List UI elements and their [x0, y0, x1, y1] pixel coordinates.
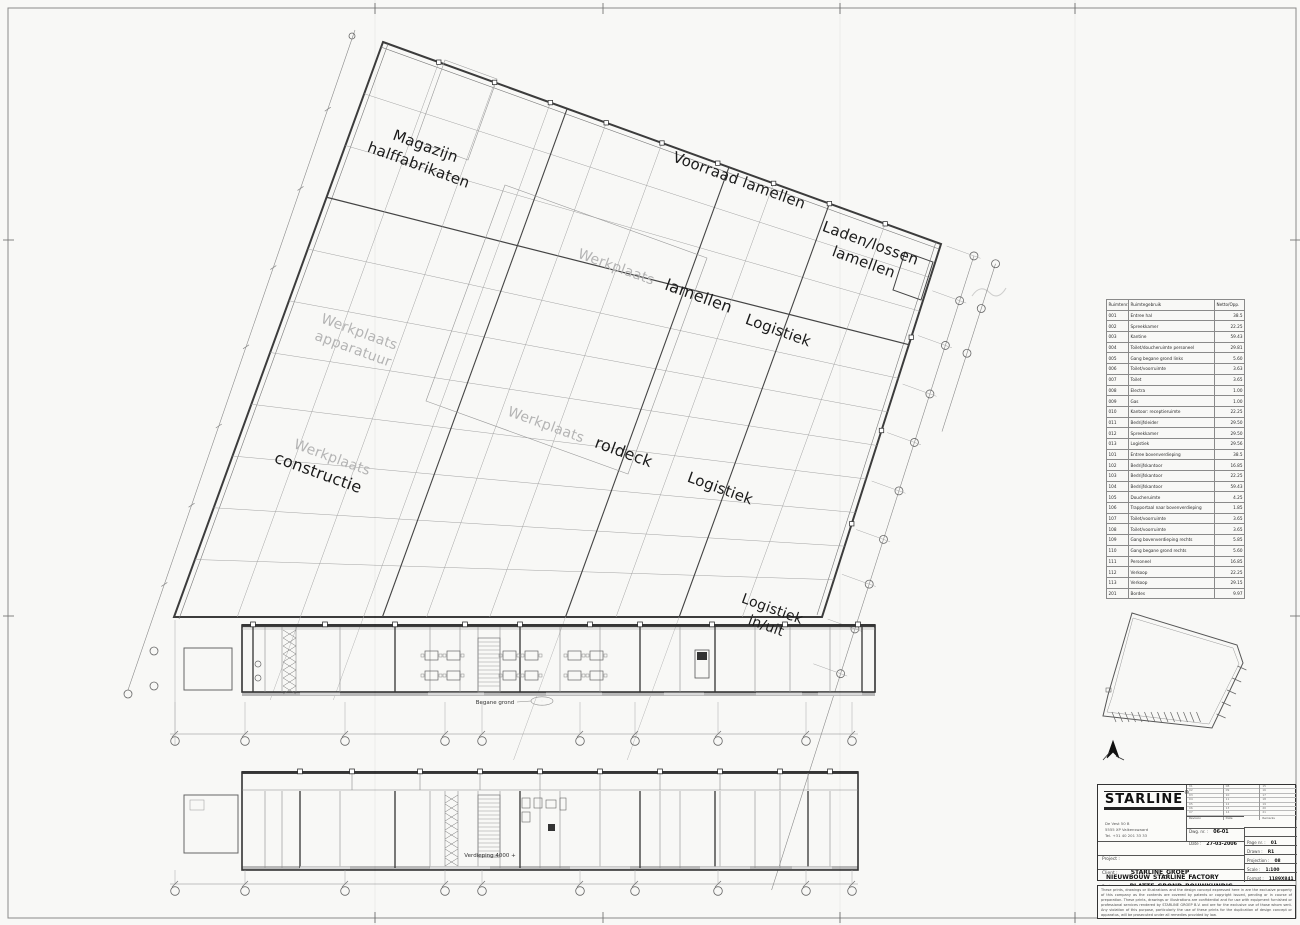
- table-row: 012Spreekkamer29.50: [1107, 428, 1245, 439]
- table-cell: Bedrijfskantoor: [1129, 460, 1215, 471]
- table-cell: 201: [1107, 588, 1129, 599]
- table-cell: 007: [1107, 374, 1129, 385]
- table-cell: 59.43: [1215, 332, 1245, 343]
- table-row: 009Gas1.00: [1107, 396, 1245, 407]
- table-row: 107Toilet/voorruimte3.65: [1107, 513, 1245, 524]
- table-cell: 005: [1107, 353, 1129, 364]
- first-floor-plan: [184, 769, 858, 870]
- table-row: 109Gang bovenverdieping rechts5.85: [1107, 535, 1245, 546]
- table-row: 004Toilet/doucheruimte personeel29.81: [1107, 342, 1245, 353]
- floor-label-verdieping: Verdieping 4000 +: [464, 853, 515, 859]
- table-row: 002Spreekkamer22.25: [1107, 321, 1245, 332]
- scan-artifact: [972, 288, 1006, 296]
- starline-logo: STARLINE®: [1102, 788, 1186, 814]
- drawn-field: Drawn : R1: [1244, 836, 1297, 845]
- table-cell: 5.60: [1215, 353, 1245, 364]
- table-cell: Verkoop: [1129, 567, 1215, 578]
- table-cell: Kantoor: receptieruimte: [1129, 406, 1215, 417]
- table-row: 110Gang begane grond rechts5.60: [1107, 545, 1245, 556]
- table-cell: Personeel: [1129, 556, 1215, 567]
- table-cell: Logistiek: [1129, 438, 1215, 449]
- table-cell: Kantine: [1129, 332, 1215, 343]
- table-cell: 29.50: [1215, 428, 1245, 439]
- table-cell: 010: [1107, 406, 1129, 417]
- table-row: 101Entree bovenverdieping38.5: [1107, 449, 1245, 460]
- table-cell: 006: [1107, 364, 1129, 375]
- table-cell: 011: [1107, 417, 1129, 428]
- table-row: 010Kantoor: receptieruimte22.25: [1107, 406, 1245, 417]
- table-cell: 22.25: [1215, 406, 1245, 417]
- table-cell: 29.50: [1215, 417, 1245, 428]
- table-cell: 004: [1107, 342, 1129, 353]
- table-cell: 107: [1107, 513, 1129, 524]
- table-cell: 5.60: [1215, 545, 1245, 556]
- table-cell: Gang begane grond rechts: [1129, 545, 1215, 556]
- table-row: 001Entree hal38.5: [1107, 310, 1245, 321]
- table-cell: 008: [1107, 385, 1129, 396]
- table-cell: 012: [1107, 428, 1129, 439]
- drawing-sheet: Magazijn halffabrikaten Voorraad lamelle…: [0, 0, 1300, 925]
- table-cell: Bedrijfskantoor: [1129, 481, 1215, 492]
- date-field: Date : 27-03-2006: [1186, 828, 1244, 841]
- projection-field: Projection : 08: [1244, 845, 1297, 854]
- table-cell: 106: [1107, 503, 1129, 514]
- fold-mark: [1074, 0, 1076, 925]
- revision-column: 01020304050607Revision: [1187, 785, 1224, 820]
- project-field: Project : NIEUWBOUW_STARLINE_FACTORY: [1098, 841, 1244, 855]
- factory-hall-plan: [174, 42, 941, 760]
- table-cell: 22.25: [1215, 567, 1245, 578]
- table-cell: 102: [1107, 460, 1129, 471]
- table-cell: 38.5: [1215, 449, 1245, 460]
- table-cell: 3.65: [1215, 513, 1245, 524]
- table-cell: 3.65: [1215, 374, 1245, 385]
- table-row: 006Toilet/voorruimte3.63: [1107, 364, 1245, 375]
- dwg-number-field: Dwg. nr. : 06-01: [1186, 816, 1244, 828]
- table-cell: Bedrijfsleider: [1129, 417, 1215, 428]
- table-cell: Spreekkamer: [1129, 321, 1215, 332]
- table-cell: 002: [1107, 321, 1129, 332]
- table-cell: Toilet/doucheruimte personeel: [1129, 342, 1215, 353]
- table-cell: 22.25: [1215, 471, 1245, 482]
- fold-mark: [839, 0, 841, 925]
- table-cell: Toilet: [1129, 374, 1215, 385]
- company-address: De Vest 50 B5555 XP ValkenswaardTel. +31…: [1105, 821, 1189, 839]
- table-cell: 105: [1107, 492, 1129, 503]
- table-cell: 1.85: [1215, 503, 1245, 514]
- table-cell: Gas: [1129, 396, 1215, 407]
- column-header: Netto/Opp.: [1215, 300, 1245, 311]
- table-cell: Doucheruimte: [1129, 492, 1215, 503]
- table-cell: Toilet/voorruimte: [1129, 524, 1215, 535]
- table-cell: 38.5: [1215, 310, 1245, 321]
- table-cell: Gang bovenverdieping rechts: [1129, 535, 1215, 546]
- table-cell: 16.85: [1215, 556, 1245, 567]
- table-cell: 9.97: [1215, 588, 1245, 599]
- table-cell: 29.81: [1215, 342, 1245, 353]
- table-cell: 108: [1107, 524, 1129, 535]
- revision-column: 08091011121314Date: [1224, 785, 1261, 820]
- table-cell: 29.56: [1215, 438, 1245, 449]
- table-row: 108Toilet/voorruimte3.65: [1107, 524, 1245, 535]
- table-cell: 113: [1107, 577, 1129, 588]
- table-cell: 009: [1107, 396, 1129, 407]
- part-field: Part : PLATTE_GROND_BOUWKUNDIG: [1098, 869, 1244, 882]
- client-field: Client : STARLINE_GROEP: [1098, 855, 1244, 869]
- table-cell: 29.15: [1215, 577, 1245, 588]
- starline-logo-text: STARLINE®: [1104, 791, 1184, 810]
- revision-column: 15161718192021Remarks: [1260, 785, 1297, 820]
- table-cell: Gang begane grond links: [1129, 353, 1215, 364]
- table-cell: 101: [1107, 449, 1129, 460]
- table-cell: 111: [1107, 556, 1129, 567]
- table-cell: Bedrijfskantoor: [1129, 471, 1215, 482]
- table-row: 201Bordes9.97: [1107, 588, 1245, 599]
- floor-label-begane-grond: Begane grond: [476, 700, 515, 706]
- table-cell: 013: [1107, 438, 1129, 449]
- table-cell: Spreekkamer: [1129, 428, 1215, 439]
- table-row: 111Personeel16.85: [1107, 556, 1245, 567]
- scale-field: Scale : 1:100: [1244, 854, 1297, 863]
- table-cell: 103: [1107, 471, 1129, 482]
- table-cell: Toilet/voorruimte: [1129, 364, 1215, 375]
- table-row: 105Doucheruimte4.25: [1107, 492, 1245, 503]
- north-arrow-icon: [1103, 741, 1124, 760]
- table-cell: 16.85: [1215, 460, 1245, 471]
- table-cell: 4.25: [1215, 492, 1245, 503]
- table-cell: 22.25: [1215, 321, 1245, 332]
- table-cell: 109: [1107, 535, 1129, 546]
- table-row: 104Bedrijfskantoor59.43: [1107, 481, 1245, 492]
- table-row: 106Trapportaal naar bovenverdieping1.85: [1107, 503, 1245, 514]
- column-header: Ruimtegebruik: [1129, 300, 1215, 311]
- table-cell: Verkoop: [1129, 577, 1215, 588]
- table-cell: 104: [1107, 481, 1129, 492]
- table-cell: 3.65: [1215, 524, 1245, 535]
- table-cell: Entree hal: [1129, 310, 1215, 321]
- table-cell: 3.63: [1215, 364, 1245, 375]
- table-cell: 5.85: [1215, 535, 1245, 546]
- table-row: 102Bedrijfskantoor16.85: [1107, 460, 1245, 471]
- table-cell: 59.43: [1215, 481, 1245, 492]
- table-row: 003Kantine59.43: [1107, 332, 1245, 343]
- table-row: 113Verkoop29.15: [1107, 577, 1245, 588]
- column-header: Ruimtenr.: [1107, 300, 1129, 311]
- room-schedule-table: Ruimtenr.RuimtegebruikNetto/Opp.001Entre…: [1106, 299, 1244, 599]
- title-block: STARLINE® De Vest 50 B5555 XP Valkenswaa…: [1097, 784, 1296, 881]
- table-cell: Electra: [1129, 385, 1215, 396]
- table-row: 008Electra1.00: [1107, 385, 1245, 396]
- table-cell: 112: [1107, 567, 1129, 578]
- table-cell: Entree bovenverdieping: [1129, 449, 1215, 460]
- site-location-sketch: [1103, 613, 1246, 728]
- table-cell: 001: [1107, 310, 1129, 321]
- table-row: 007Toilet3.65: [1107, 374, 1245, 385]
- table-row: 013Logistiek29.56: [1107, 438, 1245, 449]
- revision-grid: 01020304050607Revision08091011121314Date…: [1186, 785, 1297, 816]
- table-cell: Toilet/voorruimte: [1129, 513, 1215, 524]
- table-cell: Trapportaal naar bovenverdieping: [1129, 503, 1215, 514]
- copyright-disclaimer: These prints, drawings or illustrations …: [1097, 885, 1296, 919]
- table-header-row: Ruimtenr.RuimtegebruikNetto/Opp.: [1107, 300, 1245, 311]
- table-row: 103Bedrijfskantoor22.25: [1107, 471, 1245, 482]
- table-row: 011Bedrijfsleider29.50: [1107, 417, 1245, 428]
- table-row: 005Gang begane grond links5.60: [1107, 353, 1245, 364]
- address-line: Tel. +31 40 201 33 33: [1105, 833, 1189, 839]
- table-cell: 110: [1107, 545, 1129, 556]
- project-number-field: Project nr. : 2006-108: [1244, 872, 1297, 882]
- dimension-lines: [124, 30, 1000, 890]
- page-number-field: Page nr. : 01: [1244, 827, 1297, 836]
- table-row: 112Verkoop22.25: [1107, 567, 1245, 578]
- format-field: Format : 1189X841: [1244, 863, 1297, 872]
- table-cell: 003: [1107, 332, 1129, 343]
- table-cell: 1.00: [1215, 385, 1245, 396]
- table-cell: 1.00: [1215, 396, 1245, 407]
- table-cell: Bordes: [1129, 588, 1215, 599]
